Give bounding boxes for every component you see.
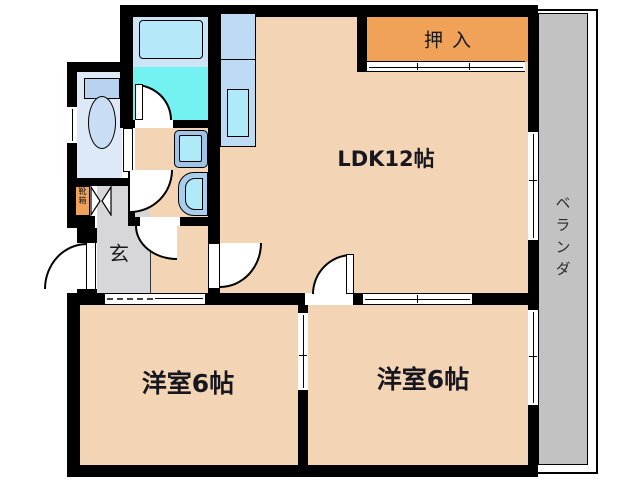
window-tick xyxy=(529,356,537,357)
oshiire-label: 押入 xyxy=(424,26,480,53)
wall-top xyxy=(120,5,528,17)
wall-between-bedrooms-bottom xyxy=(298,390,308,477)
shoe-cabinet-label: 靴箱 xyxy=(77,187,88,205)
bedroom2-label: 洋室6帖 xyxy=(377,360,469,396)
wall-shoe-bottom xyxy=(67,216,95,228)
oshiire-sliding-door xyxy=(367,61,525,72)
between-bedrooms-sliding-door xyxy=(298,313,308,390)
wall-front-upper xyxy=(77,228,97,243)
wall-toilet-top xyxy=(67,62,122,72)
toilet-door-leaf xyxy=(123,128,133,172)
washroom-doorway xyxy=(140,217,180,226)
ldk-label: LDK12帖 xyxy=(337,143,434,173)
bath-door-leaf xyxy=(135,84,143,120)
wall-mid-column xyxy=(208,5,220,243)
washbasin-bowl xyxy=(185,178,203,210)
folding-door-icon xyxy=(90,186,112,216)
bathtub-icon xyxy=(139,20,203,59)
washbasin-icon xyxy=(178,172,208,216)
hall-ldk-doorway xyxy=(208,243,220,289)
bath-doorway xyxy=(135,120,173,128)
bedroom1-label: 洋室6帖 xyxy=(142,364,234,400)
window-line xyxy=(303,315,304,388)
floor-plan: 靴箱 押入 LDK12帖 玄 洋室6帖 洋室6帖 ベランダ xyxy=(0,0,638,480)
slider-tick xyxy=(469,63,470,70)
wall-right-1 xyxy=(528,5,538,132)
slider-line xyxy=(369,67,523,68)
wall-bedroom1-left xyxy=(67,293,80,477)
wall-toilet-bottom xyxy=(67,178,133,186)
wall-closet-left xyxy=(357,5,367,72)
slider-line xyxy=(155,298,203,299)
window-line xyxy=(72,109,73,141)
counter-divider xyxy=(221,59,255,60)
bedroom2-doorway xyxy=(305,293,353,305)
toilet-window xyxy=(67,107,77,143)
genkan-step-dashed-line xyxy=(107,298,153,300)
kitchen-sink-icon xyxy=(227,89,249,137)
window-line xyxy=(533,134,534,238)
slider-tick xyxy=(417,63,418,70)
ldk-bedroom2-sliding-window xyxy=(363,294,472,304)
bedroom2-veranda-window xyxy=(528,310,538,405)
veranda-label: ベランダ xyxy=(553,195,574,283)
wall-toilet-left-a xyxy=(67,72,77,107)
wall-right-3 xyxy=(528,405,538,470)
wall-right-2 xyxy=(528,240,538,310)
window-tick xyxy=(529,180,537,181)
genkan-label: 玄 xyxy=(109,238,129,267)
shoe-cabinet-icon: 靴箱 xyxy=(75,186,90,216)
toilet-bowl-icon xyxy=(88,96,116,149)
wall-toilet-left-b xyxy=(67,143,77,178)
slider-tick xyxy=(417,295,418,303)
window-tick xyxy=(299,355,307,356)
kitchen-counter-icon xyxy=(220,13,256,147)
washing-machine-drum xyxy=(179,135,202,162)
bedroom2-door-leaf xyxy=(346,254,354,294)
front-door-leaf xyxy=(86,242,96,290)
window-line xyxy=(533,312,534,403)
bedroom1-entry-sliding-door xyxy=(105,294,205,304)
ldk-veranda-window xyxy=(528,132,538,240)
washing-machine-icon xyxy=(174,130,208,168)
front-door-arc xyxy=(44,243,87,289)
